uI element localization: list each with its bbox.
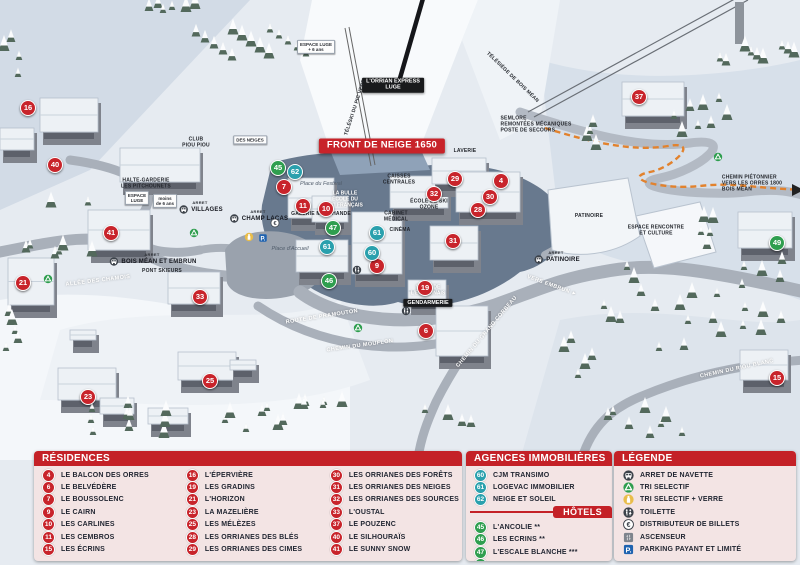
- map-label: CHEMIN DU MOUFLON: [326, 338, 394, 354]
- map-label: Place du Festival: [300, 181, 342, 187]
- bus-stop-bois-m-an-et-embrun[interactable]: ARRET BOIS MÉAN ET EMBRUN: [107, 252, 196, 266]
- marker-number-badge: 10: [42, 518, 55, 531]
- recycle-icon: [714, 153, 723, 162]
- map-label: TÉLÉSKI DU PIC VERT: [344, 80, 367, 137]
- legend-item: 16L'ÉPERVIÈRE: [186, 469, 322, 481]
- marker-number-badge: 23: [186, 506, 199, 519]
- map-label: CAISSESCENTRALES: [383, 174, 415, 186]
- glass-icon: [622, 494, 634, 505]
- legend-item-label: TRI SELECTIF: [640, 484, 689, 491]
- legend-item: 33L'OUSTAL: [330, 506, 462, 518]
- legend-item: 31LES ORRIANES DES NEIGES: [330, 481, 462, 493]
- marker-number-badge: 37: [330, 518, 343, 531]
- parking-icon: P.: [622, 544, 634, 555]
- map-marker-29[interactable]: 29: [447, 171, 463, 187]
- bus-stop-patinoire[interactable]: ARRET PATINOIRE: [532, 250, 580, 264]
- legend-item-label: TOILETTE: [640, 509, 675, 516]
- map-label: CHEMIN DU RIOU BLANC: [700, 358, 775, 380]
- marker-number-badge: 11: [42, 531, 55, 544]
- map-label: LAVERIE: [454, 149, 477, 155]
- map-marker-28[interactable]: 28: [470, 202, 486, 218]
- agencies-list: 60CJM TRANSIMO61LOGEVAC IMMOBILIER62NEIG…: [466, 469, 612, 506]
- map-marker-45[interactable]: 45: [270, 160, 286, 176]
- legend-item-label: PARKING PAYANT ET LIMITÉ: [640, 546, 741, 553]
- legend-item: 61LOGEVAC IMMOBILIER: [474, 481, 612, 493]
- legend-item: 25LES MÉLÈZES: [186, 519, 322, 531]
- legend-item-label: L'ESCALE BLANCHE ***: [493, 549, 578, 556]
- map-marker-49[interactable]: 49: [769, 235, 785, 251]
- map-label: VERS EMBRUN ►: [526, 274, 578, 298]
- legend-item-label: LES ORRIANES DES BLÉS: [205, 534, 299, 541]
- map-label: CABINETMÉDICAL: [384, 211, 408, 223]
- legend-item-label: LOGEVAC IMMOBILIER: [493, 484, 575, 491]
- bus-stop-name: BOIS MÉAN ET EMBRUN: [121, 259, 196, 265]
- marker-number-badge: 25: [186, 518, 199, 531]
- legend-item-label: LA MAZELIÈRE: [205, 509, 259, 516]
- recycle-icon: [190, 229, 199, 238]
- marker-number-badge: 60: [474, 469, 487, 482]
- agencies-header: AGENCES IMMOBILIÈRES: [466, 451, 612, 466]
- legend-item: 4LE BALCON DES ORRES: [42, 469, 178, 481]
- map-marker-25[interactable]: 25: [202, 373, 218, 389]
- marker-number-badge: 33: [330, 506, 343, 519]
- recycle-icon: [622, 482, 634, 493]
- map-marker-16[interactable]: 16: [20, 100, 36, 116]
- hotels-divider: HÔTELS: [466, 506, 612, 518]
- marker-number-badge: 47: [474, 546, 487, 559]
- marker-number-badge: 40: [330, 531, 343, 544]
- legend-item: 6LE BELVÉDÈRE: [42, 481, 178, 493]
- legend-item: 7LE BOUSSOLENC: [42, 494, 178, 506]
- marker-number-badge: 62: [474, 493, 487, 506]
- bus-stop-villages[interactable]: ARRET VILLAGES: [177, 200, 223, 214]
- legend-item-label: LE BALCON DES ORRES: [61, 472, 149, 479]
- marker-number-badge: 9: [42, 506, 55, 519]
- legend-item: 21L'HORIZON: [186, 494, 322, 506]
- legend-item: TRI SELECTIF: [622, 481, 796, 493]
- map-marker-19[interactable]: 19: [417, 280, 433, 296]
- residences-column-3: 30LES ORRIANES DES FORÊTS31LES ORRIANES …: [322, 469, 462, 556]
- legend-item: 30LES ORRIANES DES FORÊTS: [330, 469, 462, 481]
- map-label: TÉLÉSIÈGE DE BOIS MÉAN: [485, 51, 540, 104]
- svg-text:P.: P.: [625, 545, 631, 554]
- marker-number-badge: 30: [330, 469, 343, 482]
- legend-item: TOILETTE: [622, 506, 796, 518]
- map-label: CLUBPIOU PIOU: [182, 137, 210, 149]
- legend-item-label: L'ANCOLIE **: [493, 524, 540, 531]
- map-label: CHEMIN PIÉTONNIERVERS LES ORRES 1800BOIS…: [722, 175, 782, 192]
- map-marker-21[interactable]: 21: [15, 275, 31, 291]
- bus-stop-name: VILLAGES: [191, 207, 223, 213]
- legend-item: 45L'ANCOLIE **: [474, 521, 612, 533]
- map-label: SEMLOREREMONTÉES MÉCANIQUESPOSTE DE SECO…: [501, 116, 572, 133]
- map-marker-6[interactable]: 6: [418, 323, 434, 339]
- bus-icon: [532, 255, 544, 264]
- legend-item-label: LE BOUSSOLENC: [61, 496, 124, 503]
- map-marker-7[interactable]: 7: [276, 179, 292, 195]
- legend-item-label: LES GRADINS: [205, 484, 255, 491]
- legend-item: 29LES ORRIANES DES CIMES: [186, 543, 322, 555]
- map-label: DES NEIGES: [233, 135, 267, 144]
- residences-panel: RÉSIDENCES 4LE BALCON DES ORRES6LE BELVÉ…: [34, 451, 462, 561]
- residences-header: RÉSIDENCES: [34, 451, 462, 466]
- map-marker-41[interactable]: 41: [103, 225, 119, 241]
- bus-icon: [177, 205, 189, 214]
- legend-item: 9LE CAIRN: [42, 506, 178, 518]
- legend-item: 49LES TRAPPEURS **: [474, 558, 612, 561]
- marker-number-badge: 16: [186, 469, 199, 482]
- map-label: ESPACELUGE: [125, 191, 149, 205]
- legend-item: 41LE SUNNY SNOW: [330, 543, 462, 555]
- map-marker-23[interactable]: 23: [80, 389, 96, 405]
- legend-item-label: L'ÉPERVIÈRE: [205, 472, 253, 479]
- legend-item-label: LES CEMBROS: [61, 534, 115, 541]
- legend-item-label: L'OUSTAL: [349, 509, 385, 516]
- legend-item-label: LES ORRIANES DES SOURCES: [349, 496, 459, 503]
- recycle-icon: [354, 324, 363, 333]
- marker-number-badge: 15: [42, 543, 55, 556]
- map-marker-33[interactable]: 33: [192, 289, 208, 305]
- map-label: ROUTE DE PRAMOUTON: [285, 308, 358, 326]
- parking-icon: P.: [259, 234, 268, 243]
- map-label: ESPACE RENCONTREET CULTURE: [628, 225, 684, 237]
- map-marker-31[interactable]: 31: [445, 233, 461, 249]
- legend-item: ARRET DE NAVETTE: [622, 469, 796, 481]
- residences-column-1: 4LE BALCON DES ORRES6LE BELVÉDÈRE7LE BOU…: [34, 469, 178, 556]
- toilet-icon: [353, 266, 362, 275]
- bus-stop-name: CHAMP LACAS: [242, 216, 288, 222]
- marker-number-badge: 7: [42, 493, 55, 506]
- legend-item-label: ARRET DE NAVETTE: [640, 472, 713, 479]
- atm-icon: €: [271, 219, 280, 228]
- map-marker-10[interactable]: 10: [318, 201, 334, 217]
- glass-icon: [245, 233, 254, 242]
- legend-item-label: LE SILHOURAÏS: [349, 534, 406, 541]
- map-label: PONT SKIEURS: [142, 269, 182, 275]
- atm-icon: €: [622, 519, 634, 530]
- recycle-icon: [44, 275, 53, 284]
- legend-item: 10LES CARLINES: [42, 519, 178, 531]
- legend-item: 23LA MAZELIÈRE: [186, 506, 322, 518]
- map-marker-62[interactable]: 62: [287, 164, 303, 180]
- map-label: ESPACE LUGE+ 6 ans: [297, 40, 335, 54]
- map-label: CINÉMA: [390, 228, 411, 234]
- map-marker-30[interactable]: 30: [482, 189, 498, 205]
- marker-number-badge: 41: [330, 543, 343, 556]
- residences-column-2: 16L'ÉPERVIÈRE19LES GRADINS21L'HORIZON23L…: [178, 469, 322, 556]
- marker-number-badge: 49: [474, 558, 487, 561]
- map-marker-61[interactable]: 61: [319, 239, 335, 255]
- legend-item-label: NEIGE ET SOLEIL: [493, 496, 556, 503]
- bus-icon: [228, 214, 240, 223]
- agencies-panel: AGENCES IMMOBILIÈRES 60CJM TRANSIMO61LOG…: [466, 451, 612, 561]
- legend-item: 11LES CEMBROS: [42, 531, 178, 543]
- map-marker-47[interactable]: 47: [325, 220, 341, 236]
- map-label: GENDARMERIE: [403, 299, 452, 307]
- legend-item-label: LE CAIRN: [61, 509, 96, 516]
- legend-item-label: LES ORRIANES DES CIMES: [205, 546, 302, 553]
- legend-item-label: CJM TRANSIMO: [493, 472, 549, 479]
- map-marker-40[interactable]: 40: [47, 157, 63, 173]
- marker-number-badge: 6: [42, 481, 55, 494]
- legend-item-label: LES ORRIANES DES NEIGES: [349, 484, 451, 491]
- legend-item: 32LES ORRIANES DES SOURCES: [330, 494, 462, 506]
- map-label: HALTE-GARDERIELES PITCHOUNETS: [121, 178, 171, 190]
- map-marker-61[interactable]: 61: [369, 225, 385, 241]
- legend-item-label: TRI SELECTIF + VERRE: [640, 496, 723, 503]
- map-marker-37[interactable]: 37: [631, 89, 647, 105]
- map-label: ÉCOLE DE SKIOZONE: [410, 199, 448, 211]
- marker-number-badge: 31: [330, 481, 343, 494]
- legend-item-label: LES MÉLÈZES: [205, 521, 256, 528]
- legend-item: ASCENSEUR: [622, 531, 796, 543]
- marker-number-badge: 19: [186, 481, 199, 494]
- resort-map-page: FRONT DE NEIGE 1650L'ORRIAN EXPRESSLUGET…: [0, 0, 800, 565]
- toilet-icon: [402, 307, 411, 316]
- map-marker-15[interactable]: 15: [769, 370, 785, 386]
- legend-item: 15LES ÉCRINS: [42, 543, 178, 555]
- legend-item: 46LES ECRINS **: [474, 534, 612, 546]
- elevator-icon: [622, 532, 634, 543]
- marker-number-badge: 28: [186, 531, 199, 544]
- map-marker-46[interactable]: 46: [321, 273, 337, 289]
- map-label: Place d'Accueil: [271, 246, 308, 252]
- legend-item-label: LE POUZENC: [349, 521, 396, 528]
- marker-number-badge: 21: [186, 493, 199, 506]
- legend-item: 47L'ESCALE BLANCHE ***: [474, 546, 612, 558]
- legend-item: 60CJM TRANSIMO: [474, 469, 612, 481]
- hotels-header: HÔTELS: [553, 506, 612, 518]
- legend-item: 40LE SILHOURAÏS: [330, 531, 462, 543]
- legend-item-label: LES ORRIANES DES FORÊTS: [349, 472, 453, 479]
- map-marker-60[interactable]: 60: [364, 245, 380, 261]
- marker-number-badge: 29: [186, 543, 199, 556]
- marker-number-badge: 46: [474, 533, 487, 546]
- hotels-list: 45L'ANCOLIE **46LES ECRINS **47L'ESCALE …: [466, 521, 612, 561]
- legend-item: €DISTRIBUTEUR DE BILLETS: [622, 519, 796, 531]
- toilet-icon: [622, 507, 634, 518]
- map-label: moinsde 6 ans: [153, 194, 177, 208]
- legend-key-panel: LÉGENDE ARRET DE NAVETTETRI SELECTIFTRI …: [614, 451, 796, 561]
- legend-item-label: LES CARLINES: [61, 521, 115, 528]
- legend-item-label: DISTRIBUTEUR DE BILLETS: [640, 521, 740, 528]
- marker-number-badge: 32: [330, 493, 343, 506]
- legend-item: 37LE POUZENC: [330, 519, 462, 531]
- legend-item-label: LE SUNNY SNOW: [349, 546, 411, 553]
- map-label: L'ORRIAN EXPRESSLUGE: [362, 78, 424, 93]
- legend-item: TRI SELECTIF + VERRE: [622, 494, 796, 506]
- legend-item-label: LE BELVÉDÈRE: [61, 484, 117, 491]
- map-label: PATINOIRE: [575, 214, 603, 220]
- bus-stop-name: PATINOIRE: [546, 257, 580, 263]
- hotels-divider-line: [470, 511, 553, 513]
- map-label: CHEMIN DU GRAND CORBEAU: [455, 295, 519, 369]
- legend-item: P.PARKING PAYANT ET LIMITÉ: [622, 543, 796, 555]
- map-marker-4[interactable]: 4: [493, 173, 509, 189]
- front-de-neige-banner: FRONT DE NEIGE 1650: [319, 139, 445, 154]
- legend-key-list: ARRET DE NAVETTETRI SELECTIFTRI SELECTIF…: [614, 469, 796, 556]
- svg-text:€: €: [626, 522, 630, 529]
- legend-item-label: LES ÉCRINS: [61, 546, 105, 553]
- legend-item-label: ASCENSEUR: [640, 534, 686, 541]
- marker-number-badge: 4: [42, 469, 55, 482]
- legend-item-label: LES ECRINS **: [493, 536, 545, 543]
- map-label: ALLÉE DES CHAMOIS: [65, 274, 130, 288]
- bus-icon: [622, 470, 634, 481]
- legend-key-header: LÉGENDE: [614, 451, 796, 466]
- map-marker-32[interactable]: 32: [426, 186, 442, 202]
- svg-text:P.: P.: [261, 236, 266, 242]
- legend-item-label: L'HORIZON: [205, 496, 245, 503]
- legend-item: 62NEIGE ET SOLEIL: [474, 494, 612, 506]
- map-marker-11[interactable]: 11: [295, 198, 311, 214]
- marker-number-badge: 61: [474, 481, 487, 494]
- legend-item: 28LES ORRIANES DES BLÉS: [186, 531, 322, 543]
- bus-icon: [107, 257, 119, 266]
- marker-number-badge: 45: [474, 521, 487, 534]
- legend-item: 19LES GRADINS: [186, 481, 322, 493]
